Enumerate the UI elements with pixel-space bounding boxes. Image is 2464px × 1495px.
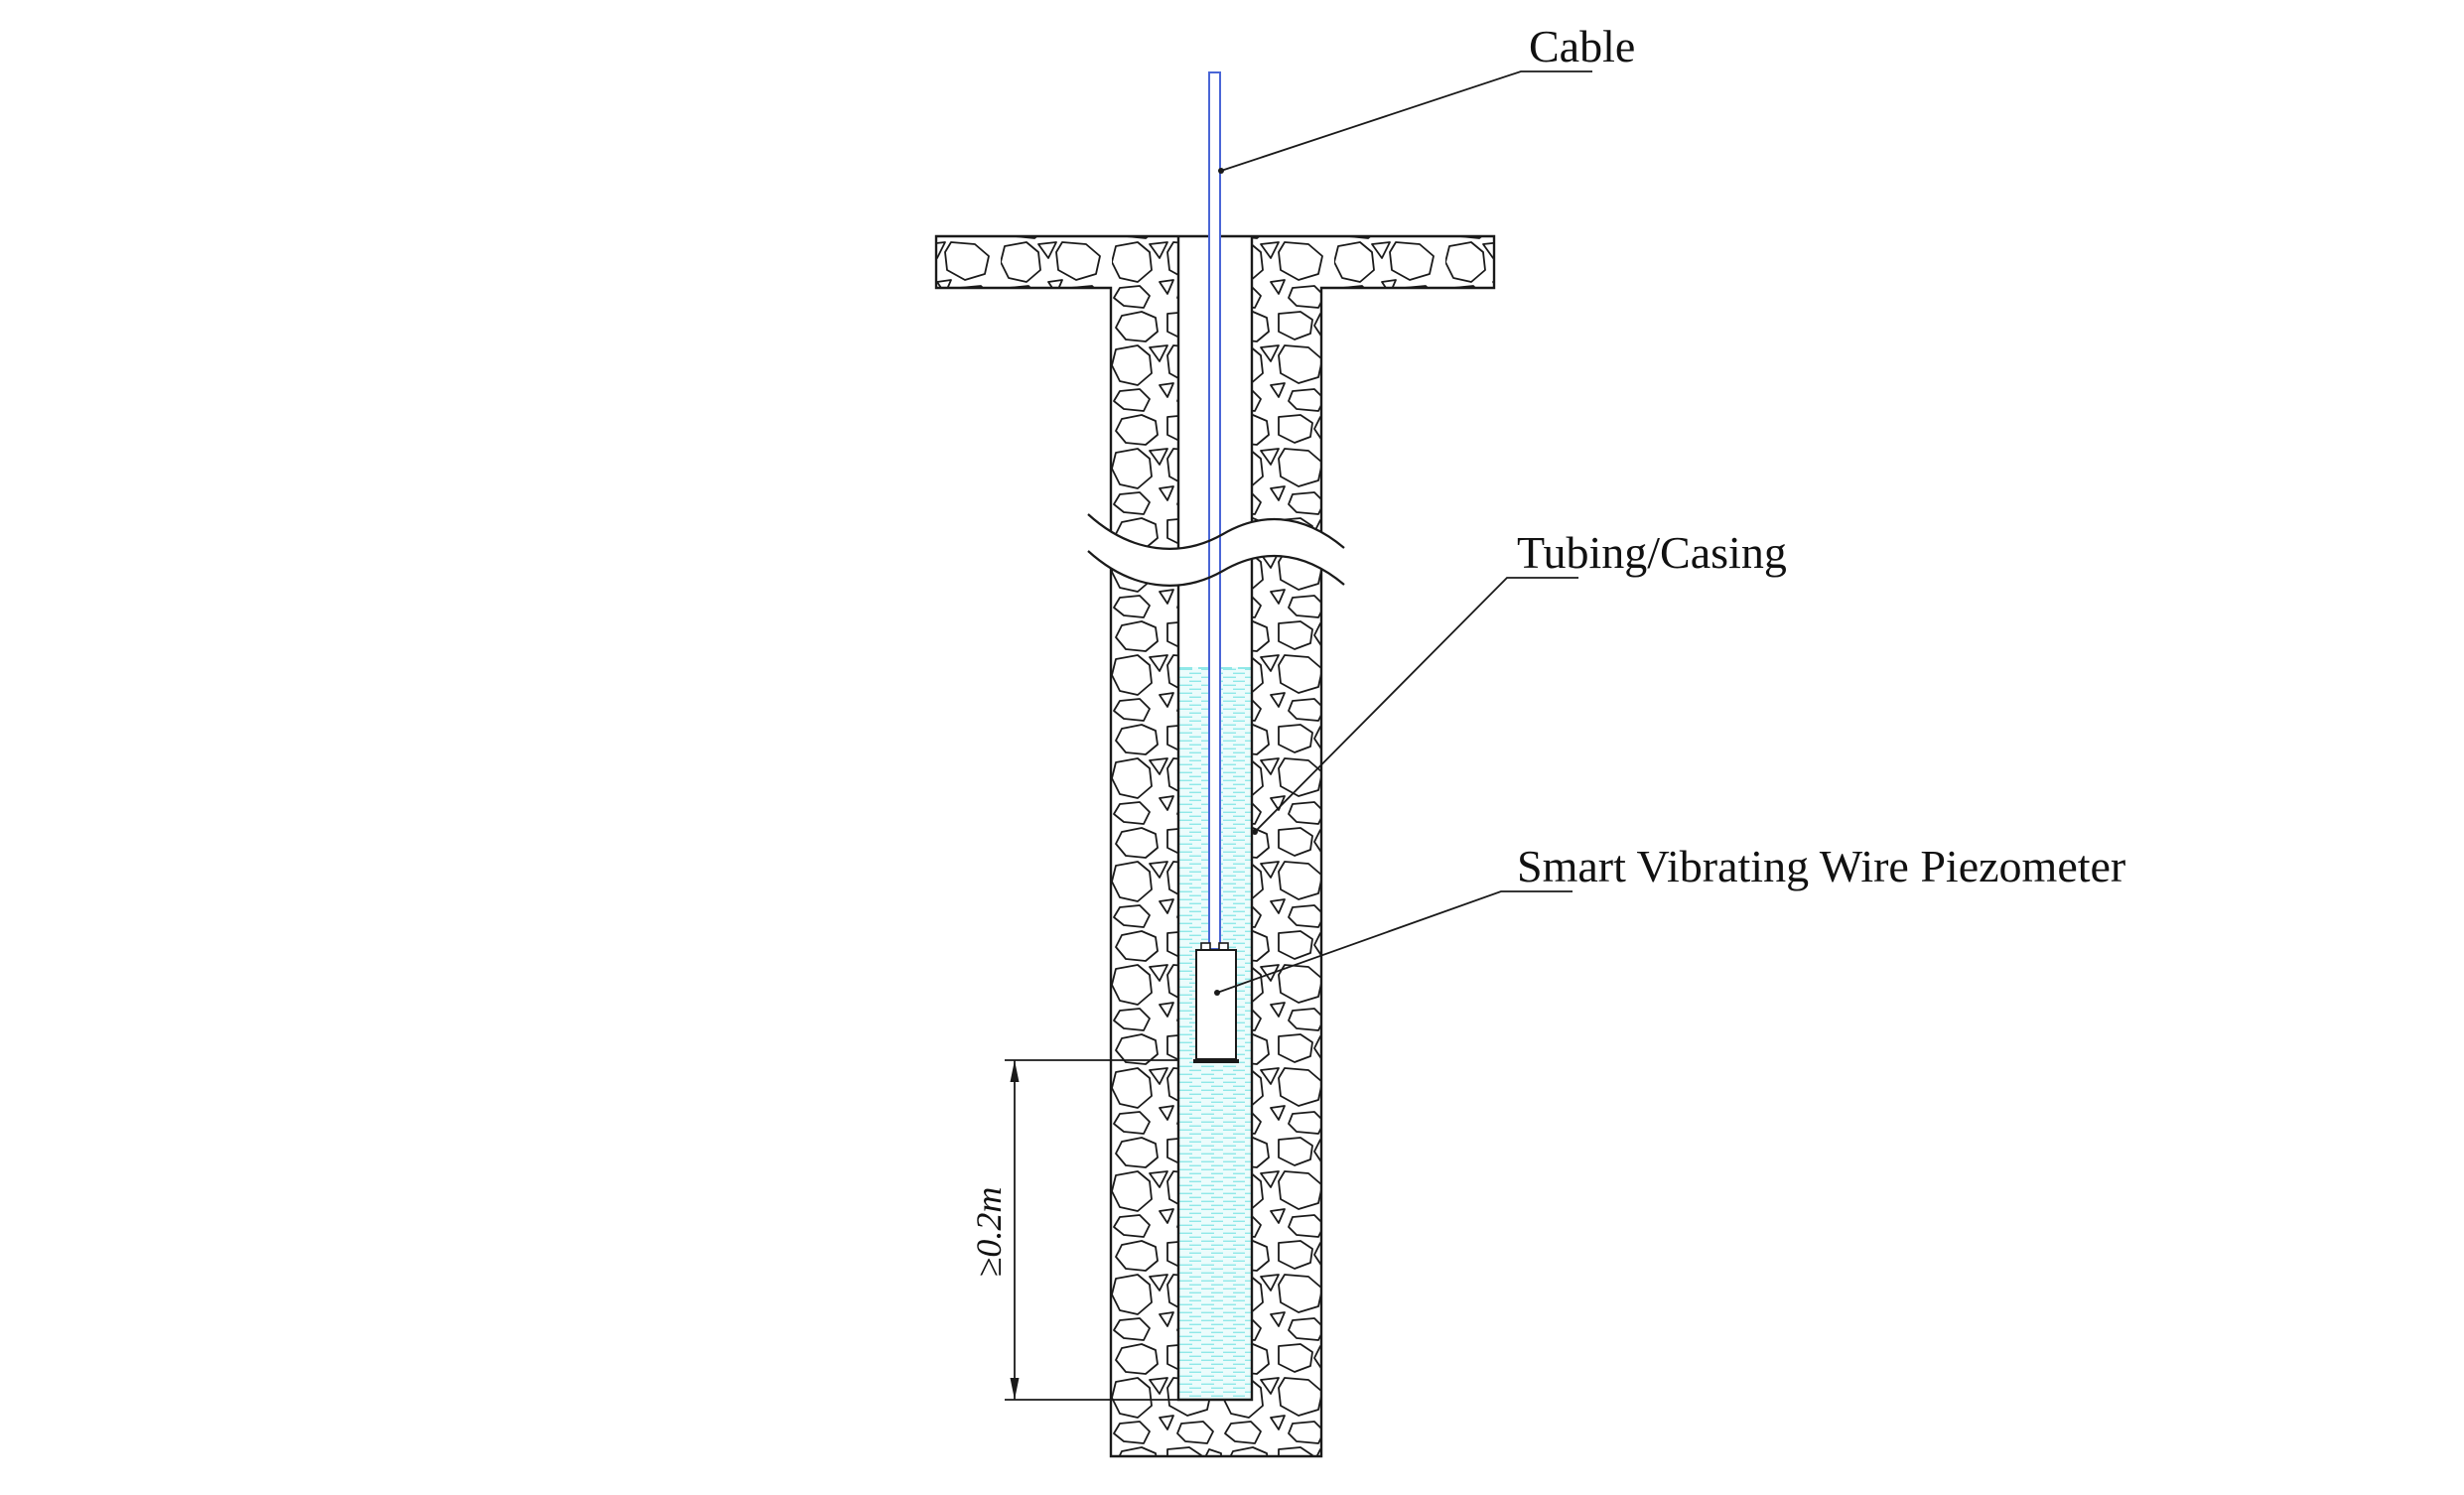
- cable-annotation: Cable: [1218, 21, 1635, 174]
- dimension-arrow-up: [1011, 1060, 1020, 1082]
- dimension-value: ≥0.2m: [969, 1187, 1009, 1278]
- cable-leader: [1221, 71, 1592, 171]
- tubing-casing-leader-dot: [1252, 829, 1258, 835]
- piezometer-installation-diagram: ≥0.2m Cable Tubing/Casing Smart Vibratin…: [0, 0, 2464, 1495]
- dimension-arrow-down: [1011, 1378, 1020, 1400]
- cable-line: [1209, 72, 1220, 949]
- tubing-casing-label: Tubing/Casing: [1517, 527, 1787, 578]
- piezometer-housing: [1196, 950, 1236, 1059]
- tubing-casing-annotation: Tubing/Casing: [1252, 527, 1787, 835]
- piezometer-leader-dot: [1214, 990, 1220, 996]
- cable-label: Cable: [1529, 21, 1635, 71]
- cable-leader-dot: [1218, 168, 1224, 174]
- piezometer-body: [1193, 943, 1239, 1061]
- diagram-canvas: ≥0.2m Cable Tubing/Casing Smart Vibratin…: [0, 0, 2464, 1495]
- piezometer-annotation: Smart Vibrating Wire Piezometer: [1214, 841, 2125, 996]
- piezometer-label: Smart Vibrating Wire Piezometer: [1517, 841, 2125, 891]
